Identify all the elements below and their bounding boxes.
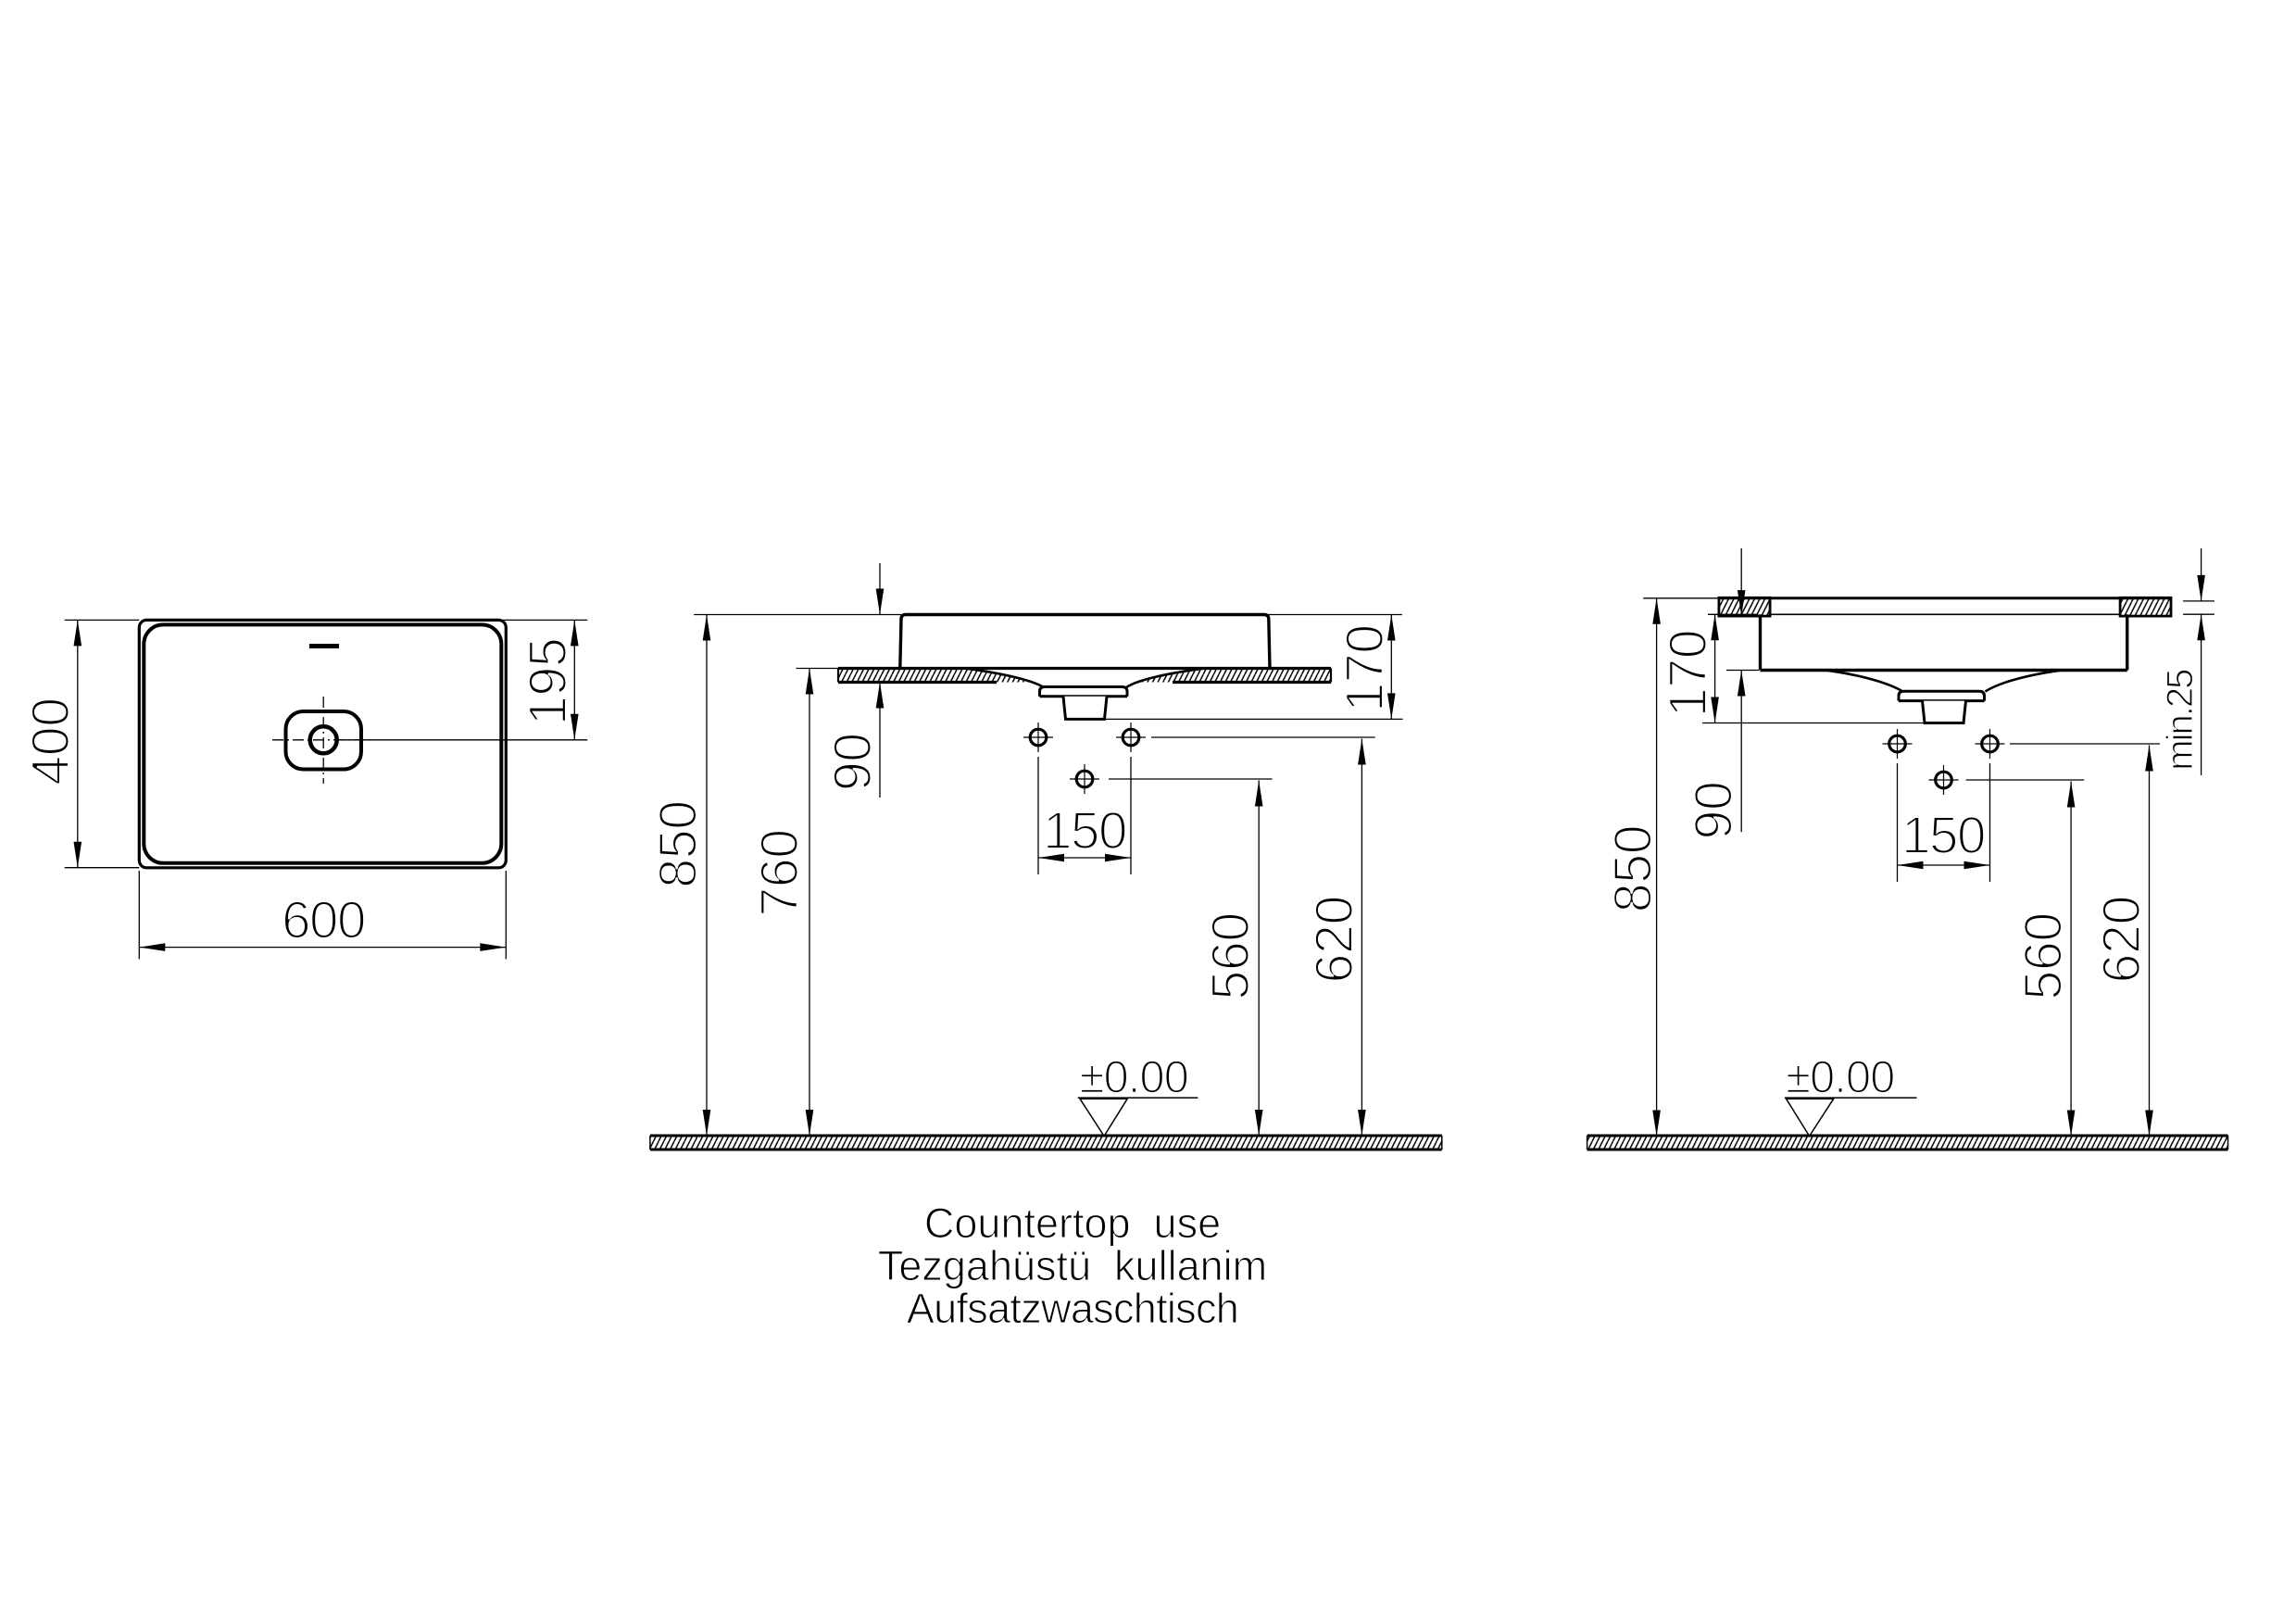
svg-text:850: 850 <box>648 800 708 887</box>
svg-text:90: 90 <box>1684 782 1743 840</box>
svg-text:170: 170 <box>1336 624 1395 711</box>
svg-text:400: 400 <box>21 697 81 785</box>
svg-text:600: 600 <box>282 891 365 949</box>
svg-text:Countertop use: Countertop use <box>924 1200 1221 1247</box>
svg-text:Tezgahüstü kullanim: Tezgahüstü kullanim <box>878 1242 1267 1289</box>
svg-text:min.25: min.25 <box>2160 670 2201 771</box>
svg-text:760: 760 <box>750 829 809 916</box>
svg-text:±0.00: ±0.00 <box>1080 1053 1188 1103</box>
svg-text:620: 620 <box>1305 896 1364 983</box>
svg-text:150: 150 <box>1901 806 1985 864</box>
svg-text:850: 850 <box>1603 825 1662 912</box>
svg-text:560: 560 <box>1201 912 1261 999</box>
svg-text:±0.00: ±0.00 <box>1786 1053 1894 1103</box>
svg-text:90: 90 <box>823 733 883 791</box>
svg-text:195: 195 <box>519 638 578 725</box>
svg-text:560: 560 <box>2014 912 2074 999</box>
svg-text:620: 620 <box>2092 896 2152 983</box>
svg-text:150: 150 <box>1043 801 1126 860</box>
svg-text:170: 170 <box>1659 630 1718 717</box>
svg-text:Aufsatzwaschtisch: Aufsatzwaschtisch <box>907 1285 1238 1332</box>
